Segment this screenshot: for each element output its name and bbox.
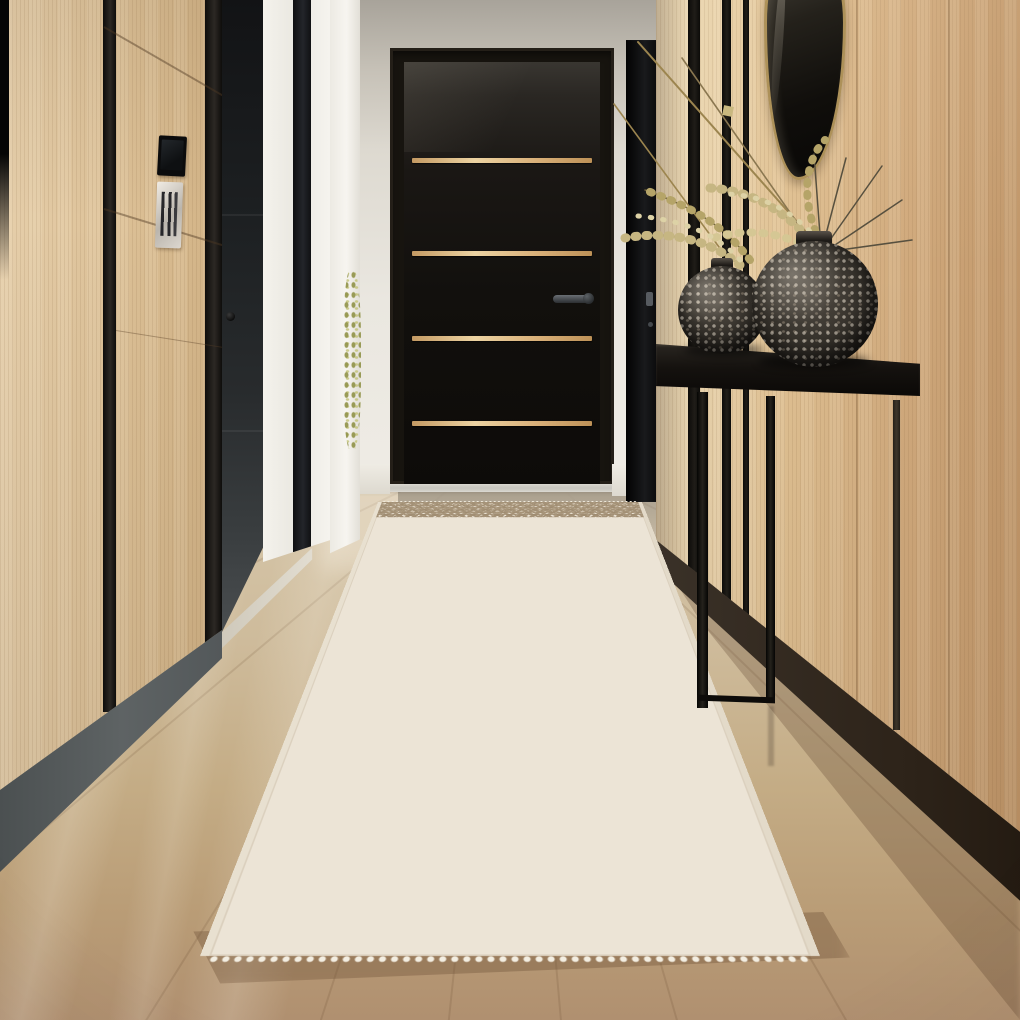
wall-display-panel [157,135,187,176]
sign-figure-icon [160,192,178,237]
glass-door-knob [226,312,235,321]
door-sheen [404,62,600,152]
runner-rug [200,500,820,956]
glass-seam [222,214,265,216]
brass-inlay [412,158,592,163]
display-screen [160,139,184,170]
brass-inlay [412,251,592,256]
glass-seam [222,430,265,432]
window-frame-edge [0,0,9,280]
console-leg [893,400,900,730]
panel-seam [948,0,950,840]
hallway-scene [0,0,1020,1020]
window-frame [293,0,311,552]
rug-band-plain [378,502,641,511]
window [263,0,332,562]
brass-inlay [412,421,592,426]
panel-groove [103,0,116,712]
brass-inlay [412,336,592,341]
baseboard-white [358,464,390,494]
wall-sign-plate [155,182,183,249]
rug-plane [200,502,820,956]
narrow-door-lock [648,322,653,327]
console-leg [766,396,775,702]
plant [343,270,361,450]
main-door [404,62,600,484]
console-leg [697,392,708,708]
large-vase [752,241,878,367]
